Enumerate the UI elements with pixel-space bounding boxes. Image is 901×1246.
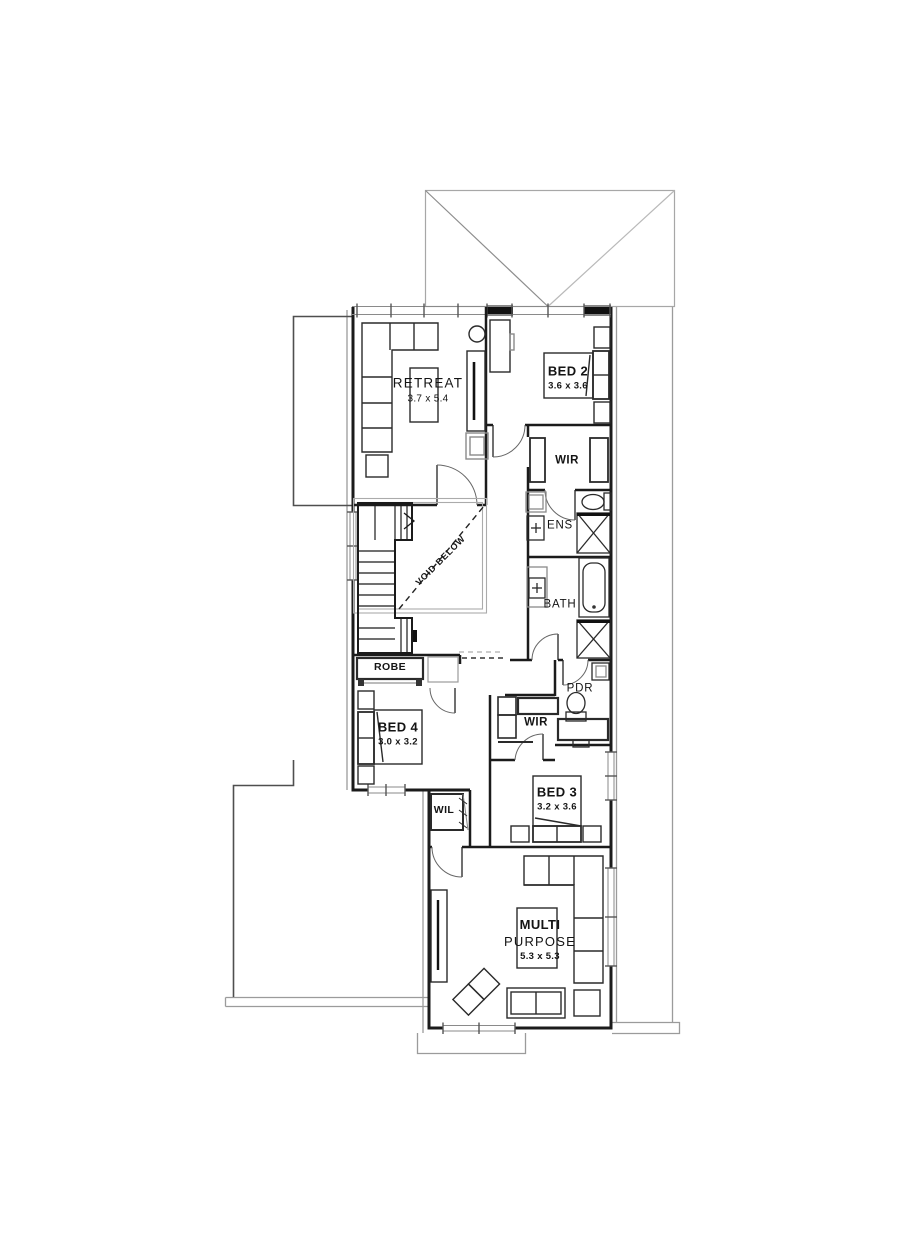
ground-floor-edge <box>234 317 353 998</box>
desk <box>490 320 510 372</box>
room-name: BED 3 <box>537 784 577 801</box>
room-name-line1: MULTI <box>504 917 576 934</box>
room-label-retreat: RETREAT 3.7 x 5.4 <box>393 375 463 406</box>
room-label-multi-purpose: MULTI PURPOSE 5.3 x 5.3 <box>504 917 576 963</box>
room-dims: 3.0 x 3.2 <box>378 736 418 748</box>
room-name: WIR <box>524 716 548 731</box>
tv-cabinet <box>467 351 485 431</box>
nightstand <box>594 402 610 423</box>
toilet <box>582 495 604 510</box>
room-name: BED 4 <box>378 719 418 736</box>
room-dims: 5.3 x 5.3 <box>504 951 576 963</box>
shower <box>577 620 610 658</box>
nightstand <box>358 766 374 784</box>
side-table <box>469 326 485 342</box>
room-label-wil: WIL <box>434 804 454 818</box>
wardrobe <box>530 438 545 482</box>
wardrobe <box>518 698 558 714</box>
room-label-robe: ROBE <box>374 661 406 675</box>
room-label-ens: ENS <box>547 519 573 534</box>
nightstand <box>358 691 374 709</box>
room-dims: 3.6 x 3.6 <box>548 380 588 392</box>
robe-furniture <box>357 657 458 686</box>
chair <box>510 334 514 350</box>
floor-plan-page: RETREAT 3.7 x 5.4 BED 2 3.6 x 3.6 WIR EN… <box>0 0 901 1246</box>
room-name: ENS <box>547 519 573 534</box>
room-label-bed3: BED 3 3.2 x 3.6 <box>537 784 577 813</box>
cabinet <box>428 657 458 682</box>
ottoman <box>574 990 600 1016</box>
room-name: PDR <box>567 682 594 697</box>
stairs <box>358 503 417 653</box>
shower <box>577 513 610 553</box>
room-name: BED 2 <box>548 363 588 380</box>
room-name: RETREAT <box>393 375 463 393</box>
room-name: ROBE <box>374 661 406 675</box>
cabinet <box>558 719 608 740</box>
wardrobe <box>590 438 608 482</box>
ottoman <box>366 455 388 477</box>
room-dims: 3.7 x 5.4 <box>393 392 463 405</box>
floor-plan-drawing <box>0 0 901 1246</box>
room-label-bed4: BED 4 3.0 x 3.2 <box>378 719 418 748</box>
shelf <box>498 697 516 715</box>
room-label-wir-top: WIR <box>555 454 579 469</box>
half-wall-dashed <box>459 652 504 658</box>
void-outline <box>354 499 487 614</box>
shelf <box>498 715 516 738</box>
pdr-fixtures <box>558 663 609 747</box>
room-name: BATH <box>543 598 576 613</box>
room-label-bed2: BED 2 3.6 x 3.6 <box>548 363 588 392</box>
room-dims: 3.2 x 3.6 <box>537 801 577 813</box>
nightstand <box>511 826 529 842</box>
nightstand <box>583 826 601 842</box>
room-name-line2: PURPOSE <box>504 934 576 951</box>
nightstand <box>594 327 610 348</box>
room-name: WIL <box>434 804 454 818</box>
room-label-bath: BATH <box>543 598 576 613</box>
roof-outline <box>426 191 675 307</box>
room-label-wir-mid: WIR <box>524 716 548 731</box>
armchair <box>453 968 500 1015</box>
room-label-pdr: PDR <box>567 682 594 697</box>
room-name: WIR <box>555 454 579 469</box>
